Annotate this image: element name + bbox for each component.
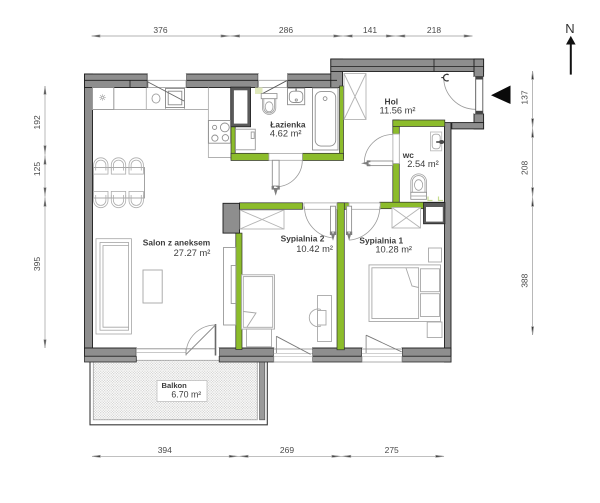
svg-text:N: N (565, 21, 574, 36)
svg-text:388: 388 (520, 273, 530, 287)
svg-text:10.28 m²: 10.28 m² (375, 245, 412, 255)
svg-text:218: 218 (427, 25, 441, 35)
svg-text:141: 141 (363, 25, 377, 35)
svg-text:192: 192 (32, 115, 42, 129)
svg-text:4.62 m²: 4.62 m² (270, 128, 302, 138)
svg-text:Salon z aneksem: Salon z aneksem (143, 237, 211, 247)
svg-text:27.27 m²: 27.27 m² (174, 248, 211, 258)
svg-text:208: 208 (520, 161, 530, 175)
svg-text:286: 286 (279, 25, 293, 35)
svg-text:10.42 m²: 10.42 m² (296, 244, 333, 254)
svg-text:137: 137 (520, 90, 530, 104)
svg-text:269: 269 (280, 445, 294, 455)
svg-text:376: 376 (153, 25, 167, 35)
svg-text:395: 395 (32, 257, 42, 271)
svg-text:6.70 m²: 6.70 m² (171, 389, 201, 399)
svg-text:275: 275 (385, 445, 399, 455)
svg-text:11.56 m²: 11.56 m² (380, 106, 416, 116)
svg-text:2.54 m²: 2.54 m² (407, 159, 439, 169)
svg-text:125: 125 (32, 162, 42, 176)
svg-text:Sypialnia 2: Sypialnia 2 (281, 233, 325, 243)
svg-text:394: 394 (158, 445, 172, 455)
